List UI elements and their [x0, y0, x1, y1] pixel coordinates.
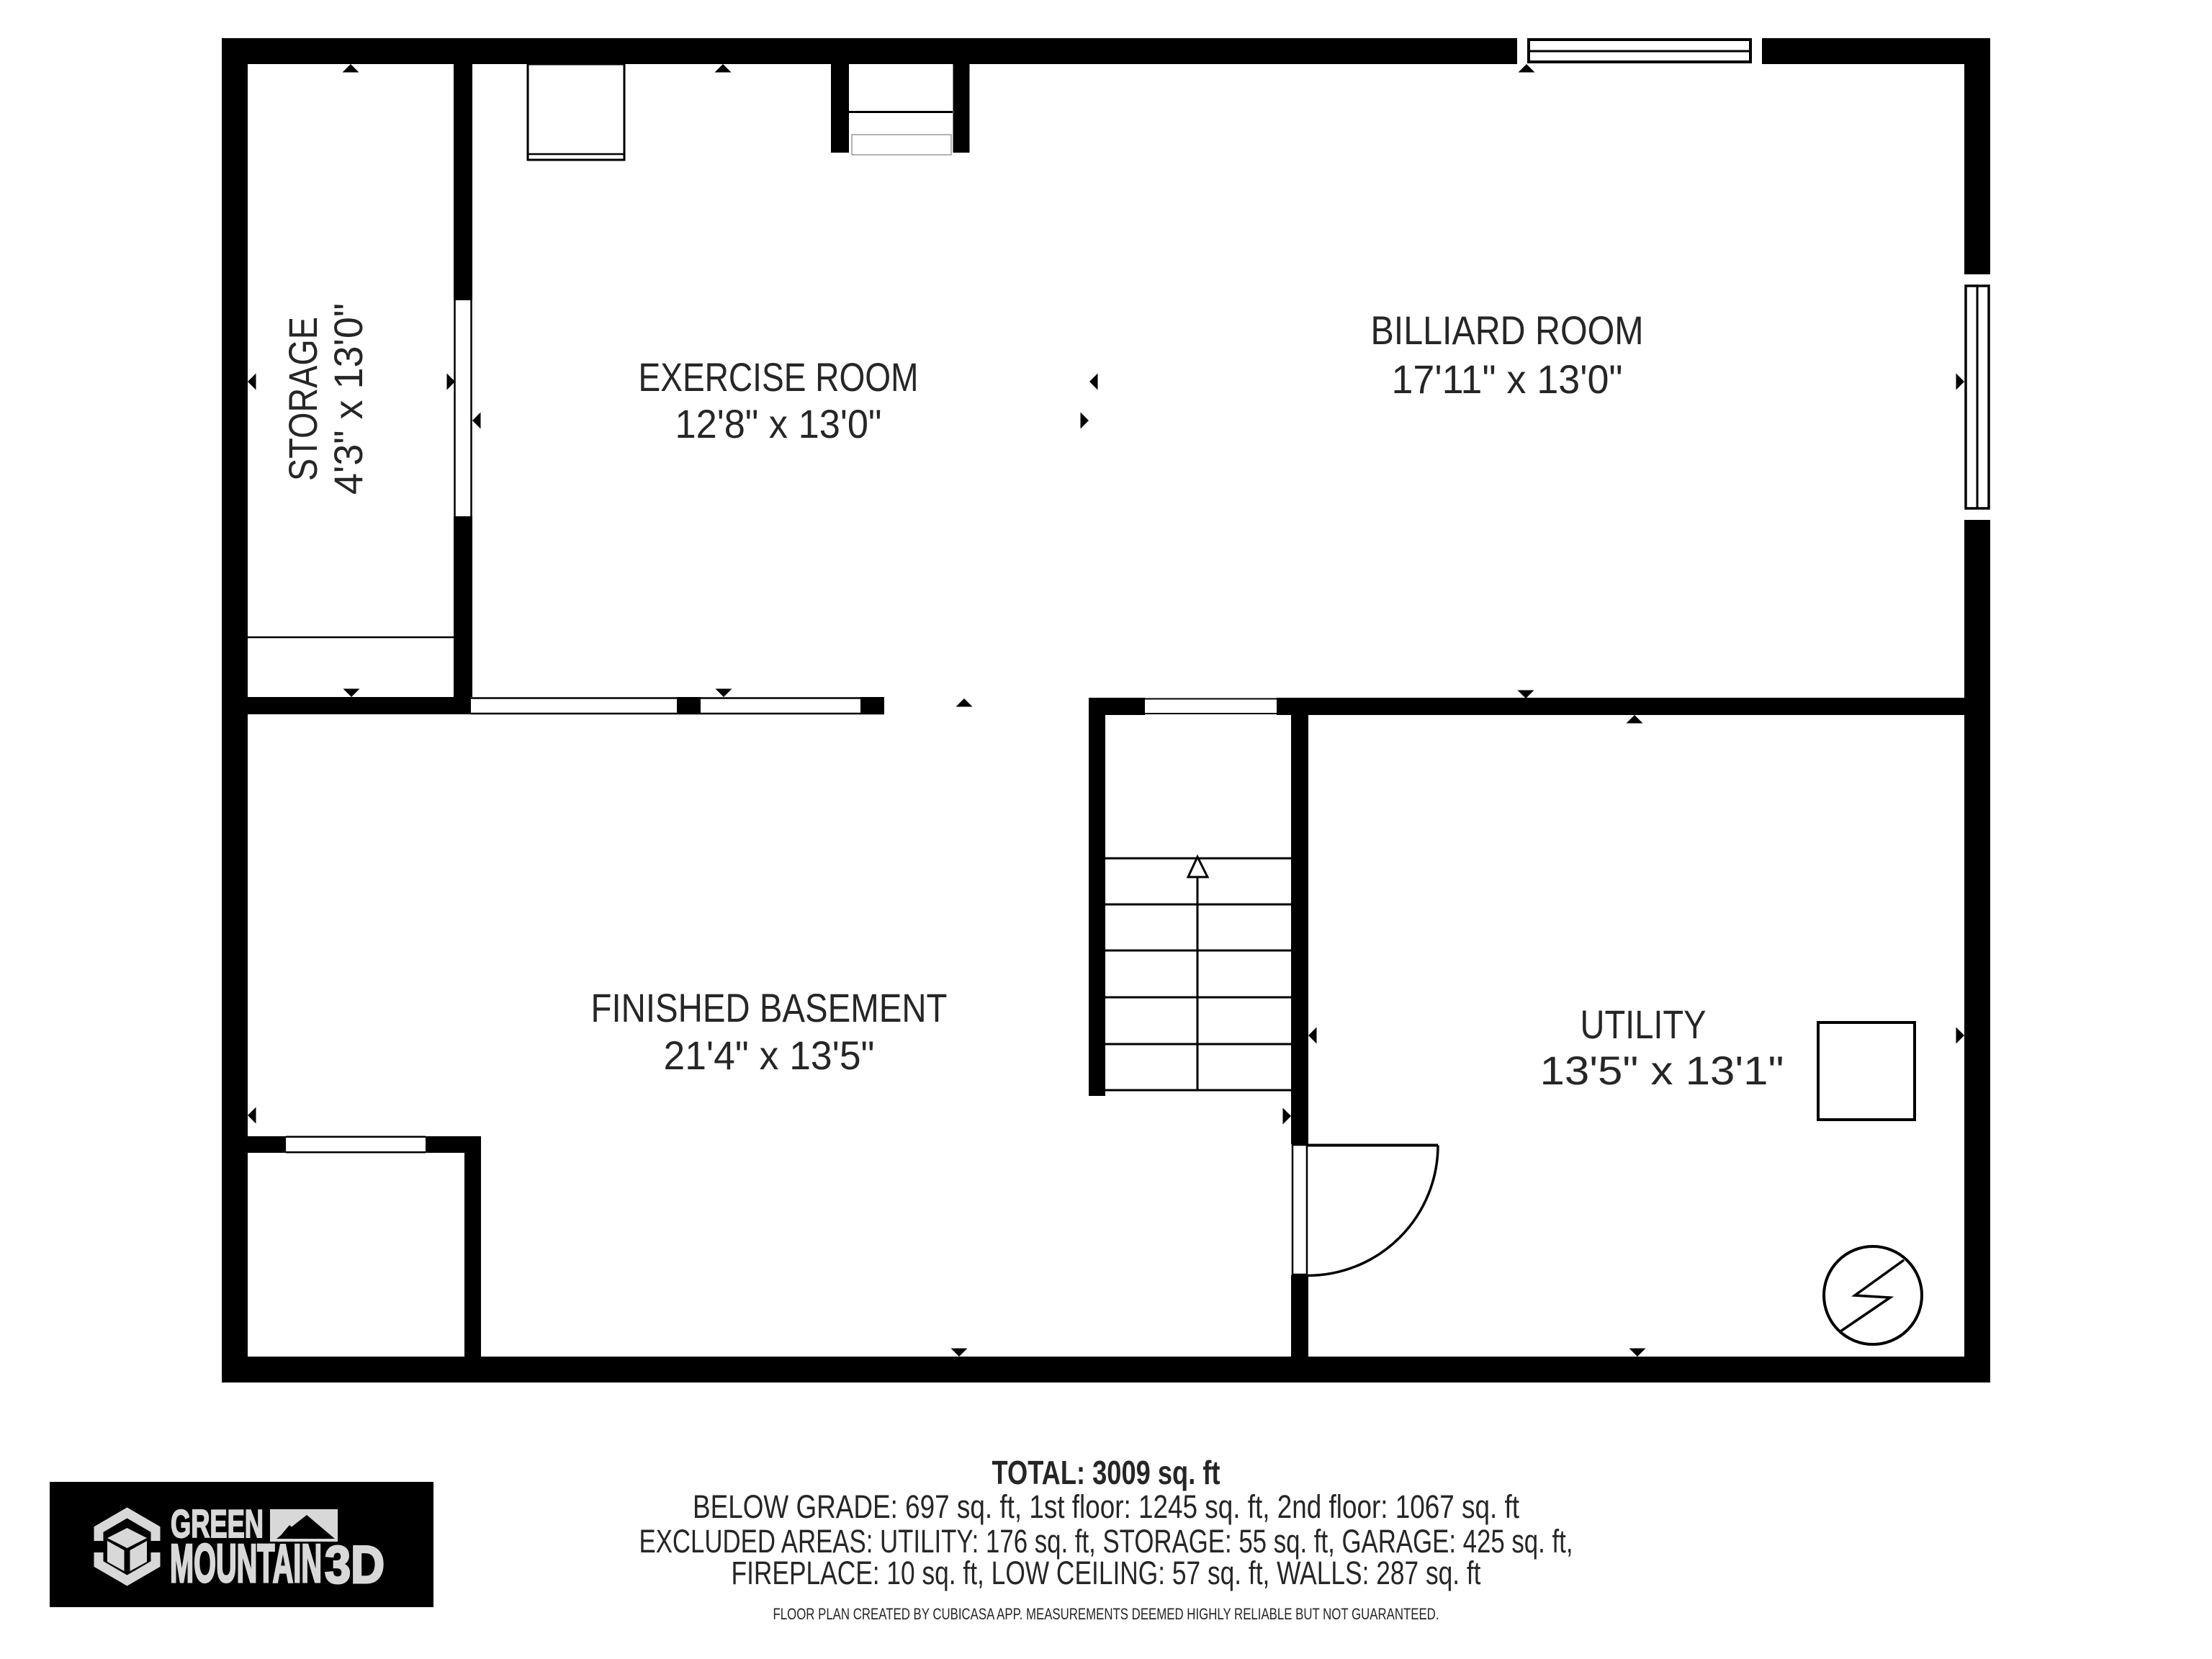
svg-text:3D: 3D: [325, 1536, 385, 1594]
svg-text:MOUNTAIN: MOUNTAIN: [170, 1533, 322, 1593]
svg-text:13'5" x 13'1": 13'5" x 13'1": [1540, 1048, 1784, 1093]
svg-text:TOTAL: 3009 sq. ft: TOTAL: 3009 sq. ft: [992, 1454, 1220, 1491]
svg-text:21'4" x 13'5": 21'4" x 13'5": [664, 1033, 875, 1078]
svg-text:BILLIARD ROOM: BILLIARD ROOM: [1371, 307, 1644, 353]
svg-text:STORAGE: STORAGE: [280, 317, 325, 481]
svg-text:17'11" x 13'0": 17'11" x 13'0": [1392, 356, 1623, 402]
svg-text:BELOW GRADE: 697 sq. ft, 1st f: BELOW GRADE: 697 sq. ft, 1st floor: 1245…: [693, 1488, 1519, 1525]
svg-text:12'8" x 13'0": 12'8" x 13'0": [675, 401, 882, 446]
svg-text:UTILITY: UTILITY: [1581, 1002, 1707, 1047]
svg-text:FIREPLACE: 10 sq. ft, LOW CEIL: FIREPLACE: 10 sq. ft, LOW CEILING: 57 sq…: [732, 1555, 1481, 1591]
svg-text:4'3" x 13'0": 4'3" x 13'0": [325, 303, 371, 495]
svg-text:FLOOR PLAN CREATED BY CUBICASA: FLOOR PLAN CREATED BY CUBICASA APP. MEAS…: [773, 1605, 1439, 1623]
svg-text:EXERCISE ROOM: EXERCISE ROOM: [639, 354, 919, 400]
svg-text:FINISHED BASEMENT: FINISHED BASEMENT: [591, 985, 948, 1030]
